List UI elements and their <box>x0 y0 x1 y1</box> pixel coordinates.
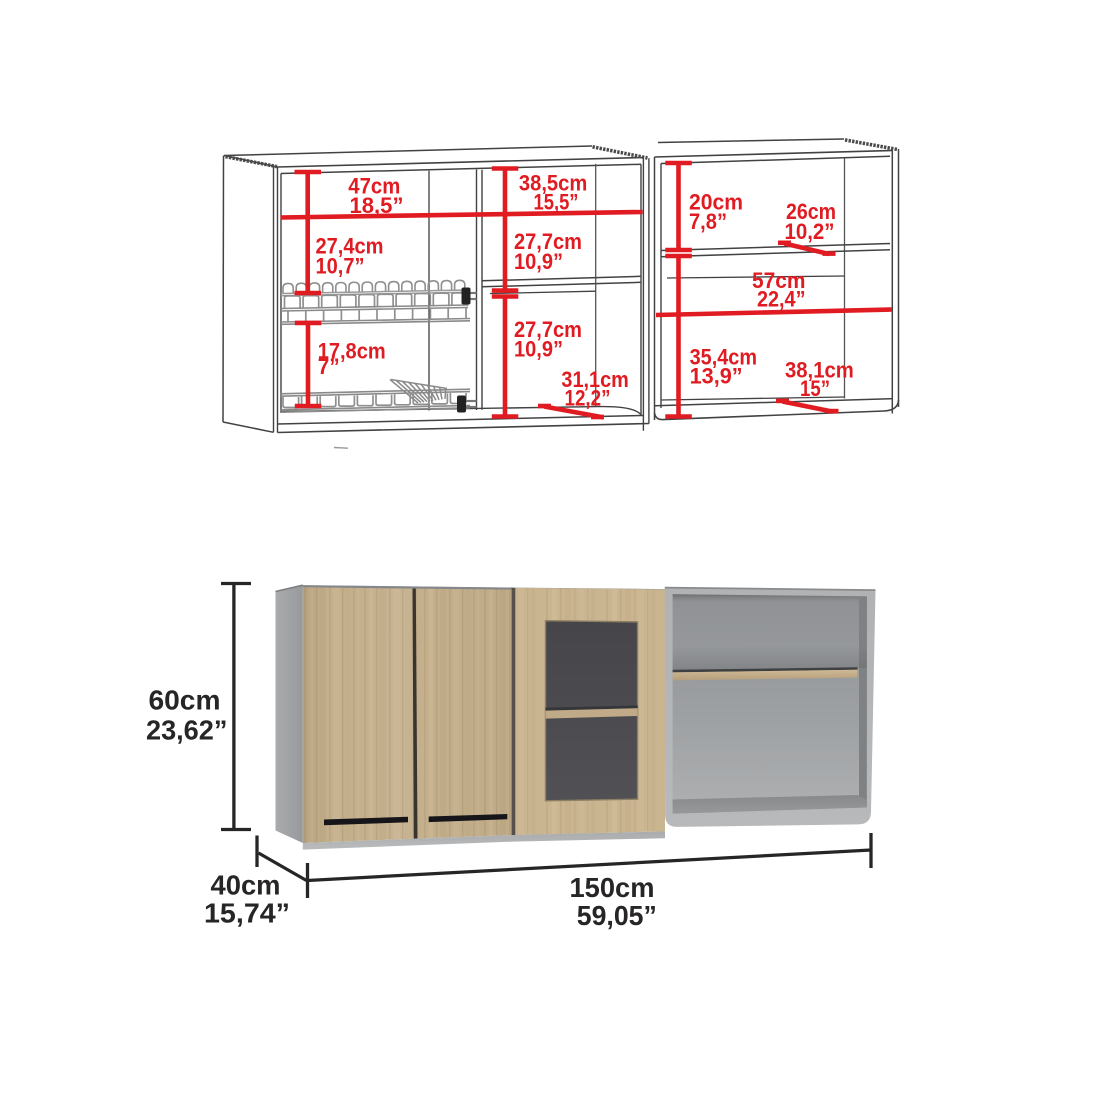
svg-text:60cm: 60cm <box>149 685 221 716</box>
svg-text:18,5”: 18,5” <box>350 193 404 218</box>
svg-text:15,5”: 15,5” <box>534 190 579 215</box>
svg-text:15”: 15” <box>800 376 830 401</box>
svg-text:10,2”: 10,2” <box>785 219 835 244</box>
svg-text:22,4”: 22,4” <box>757 287 806 312</box>
svg-text:150cm: 150cm <box>570 872 655 903</box>
svg-text:59,05”: 59,05” <box>577 900 657 931</box>
svg-text:7,8”: 7,8” <box>689 209 727 234</box>
svg-text:10,9”: 10,9” <box>514 337 563 362</box>
svg-text:40cm: 40cm <box>211 870 281 901</box>
svg-text:12,2”: 12,2” <box>565 385 611 410</box>
svg-text:13,9”: 13,9” <box>690 364 743 389</box>
svg-text:15,74”: 15,74” <box>204 898 290 929</box>
svg-text:23,62”: 23,62” <box>146 714 227 745</box>
svg-text:10,9”: 10,9” <box>514 249 563 274</box>
svg-text:7”: 7” <box>318 354 340 379</box>
svg-text:10,7”: 10,7” <box>316 254 365 279</box>
